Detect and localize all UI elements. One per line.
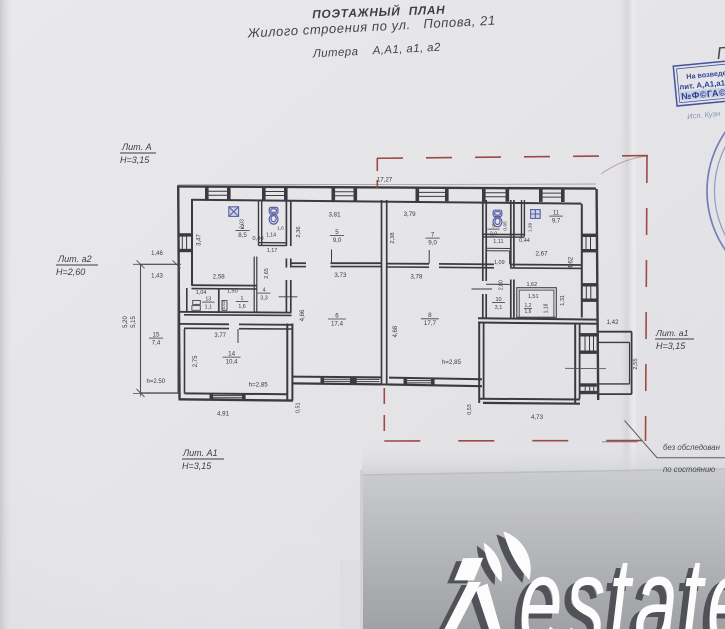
svg-text:estate: estate <box>519 532 725 629</box>
svg-text:2,0: 2,0 <box>490 232 497 238</box>
svg-text:1,43: 1,43 <box>151 274 163 280</box>
svg-text:17,27: 17,27 <box>377 177 393 184</box>
svg-text:1,11: 1,11 <box>493 239 503 245</box>
svg-text:1,42: 1,42 <box>606 319 619 326</box>
svg-text:9,0: 9,0 <box>333 237 342 244</box>
svg-text:0,44: 0,44 <box>519 238 530 244</box>
svg-text:9,0: 9,0 <box>428 240 437 247</box>
svg-text:0,51: 0,51 <box>296 403 302 414</box>
svg-text:11: 11 <box>553 211 560 217</box>
svg-text:1,51: 1,51 <box>528 294 539 300</box>
svg-text:17,4: 17,4 <box>331 320 344 327</box>
svg-text:1,39: 1,39 <box>528 223 534 233</box>
svg-text:2,75: 2,75 <box>193 355 199 367</box>
svg-text:1,46: 1,46 <box>151 251 163 257</box>
svg-text:4: 4 <box>263 288 266 294</box>
svg-text:4,62: 4,62 <box>568 256 574 268</box>
svg-text:2,67: 2,67 <box>535 250 548 257</box>
svg-text:0,40: 0,40 <box>252 236 263 242</box>
svg-text:2,36: 2,36 <box>296 226 302 237</box>
svg-text:1,2: 1,2 <box>525 303 532 309</box>
svg-text:h=2,85: h=2,85 <box>442 359 462 366</box>
svg-text:4,68: 4,68 <box>393 325 399 337</box>
svg-text:Н=3,15: Н=3,15 <box>182 461 212 471</box>
svg-text:3,79: 3,79 <box>404 211 417 218</box>
svg-text:h=2,85: h=2,85 <box>249 382 269 389</box>
svg-text:1,6: 1,6 <box>238 304 245 310</box>
svg-text:2,03: 2,03 <box>240 219 246 229</box>
svg-text:1,6: 1,6 <box>277 226 284 232</box>
svg-text:9,7: 9,7 <box>552 219 561 225</box>
svg-text:2,65: 2,65 <box>264 268 270 279</box>
svg-text:6: 6 <box>335 312 339 319</box>
svg-text:5: 5 <box>335 229 339 236</box>
svg-text:3,81: 3,81 <box>328 212 341 219</box>
svg-text:Лит. а1: Лит. а1 <box>655 328 689 338</box>
svg-text:2,58: 2,58 <box>213 274 226 281</box>
svg-text:1: 1 <box>241 296 244 302</box>
svg-text:9: 9 <box>492 224 495 230</box>
svg-text:Н=2,60: Н=2,60 <box>56 267 85 277</box>
svg-text:2,80: 2,80 <box>499 280 505 290</box>
svg-text:3,3: 3,3 <box>260 296 268 302</box>
svg-text:1,18: 1,18 <box>543 303 549 313</box>
svg-text:1,04: 1,04 <box>196 290 207 296</box>
svg-text:15: 15 <box>153 332 160 339</box>
svg-text:0,95: 0,95 <box>502 221 508 231</box>
svg-text:4,73: 4,73 <box>531 414 544 421</box>
svg-text:Лит. а2: Лит. а2 <box>57 254 92 264</box>
svg-text:1,17: 1,17 <box>267 248 278 254</box>
svg-text:0,62: 0,62 <box>221 300 226 309</box>
svg-text:h=2.50: h=2.50 <box>147 379 166 385</box>
svg-text:1,31: 1,31 <box>560 295 566 306</box>
svg-text:3,78: 3,78 <box>410 274 423 281</box>
svg-text:13: 13 <box>205 297 211 303</box>
svg-text:1,6: 1,6 <box>525 309 532 315</box>
svg-text:3,47: 3,47 <box>197 234 203 246</box>
svg-text:0,53: 0,53 <box>467 404 473 415</box>
svg-text:без обследован: без обследован <box>663 443 721 452</box>
svg-text:7,4: 7,4 <box>152 340 161 347</box>
svg-text:4,66: 4,66 <box>300 309 306 321</box>
svg-text:Лит. А1: Лит. А1 <box>182 448 218 458</box>
svg-text:Н=3,15: Н=3,15 <box>656 341 686 351</box>
svg-text:1,1: 1,1 <box>205 305 212 311</box>
svg-text:10: 10 <box>495 297 501 303</box>
svg-text:7: 7 <box>431 232 435 239</box>
svg-text:1,50: 1,50 <box>227 289 238 295</box>
svg-text:Лит. А: Лит. А <box>121 142 152 152</box>
svg-text:8: 8 <box>428 312 432 319</box>
svg-text:10,4: 10,4 <box>226 359 239 366</box>
svg-text:3,1: 3,1 <box>495 305 503 311</box>
svg-text:8,5: 8,5 <box>238 232 247 239</box>
svg-text:ПО: ПО <box>716 42 725 63</box>
svg-text:4,91: 4,91 <box>217 411 230 418</box>
svg-text:14: 14 <box>228 351 235 358</box>
svg-text:5,20: 5,20 <box>123 316 129 328</box>
svg-text:2,38: 2,38 <box>390 232 396 243</box>
svg-text:по состоянию: по состоянию <box>663 465 715 474</box>
svg-text:1,09: 1,09 <box>494 260 505 266</box>
svg-text:3,73: 3,73 <box>334 272 347 279</box>
svg-text:Н=3,15: Н=3,15 <box>120 155 150 165</box>
svg-text:5,15: 5,15 <box>131 316 137 328</box>
svg-text:1,62: 1,62 <box>526 282 537 288</box>
svg-text:1,14: 1,14 <box>266 233 276 239</box>
svg-text:2,55: 2,55 <box>633 358 639 369</box>
svg-text:3,77: 3,77 <box>214 333 226 339</box>
svg-text:17,7: 17,7 <box>424 320 437 327</box>
